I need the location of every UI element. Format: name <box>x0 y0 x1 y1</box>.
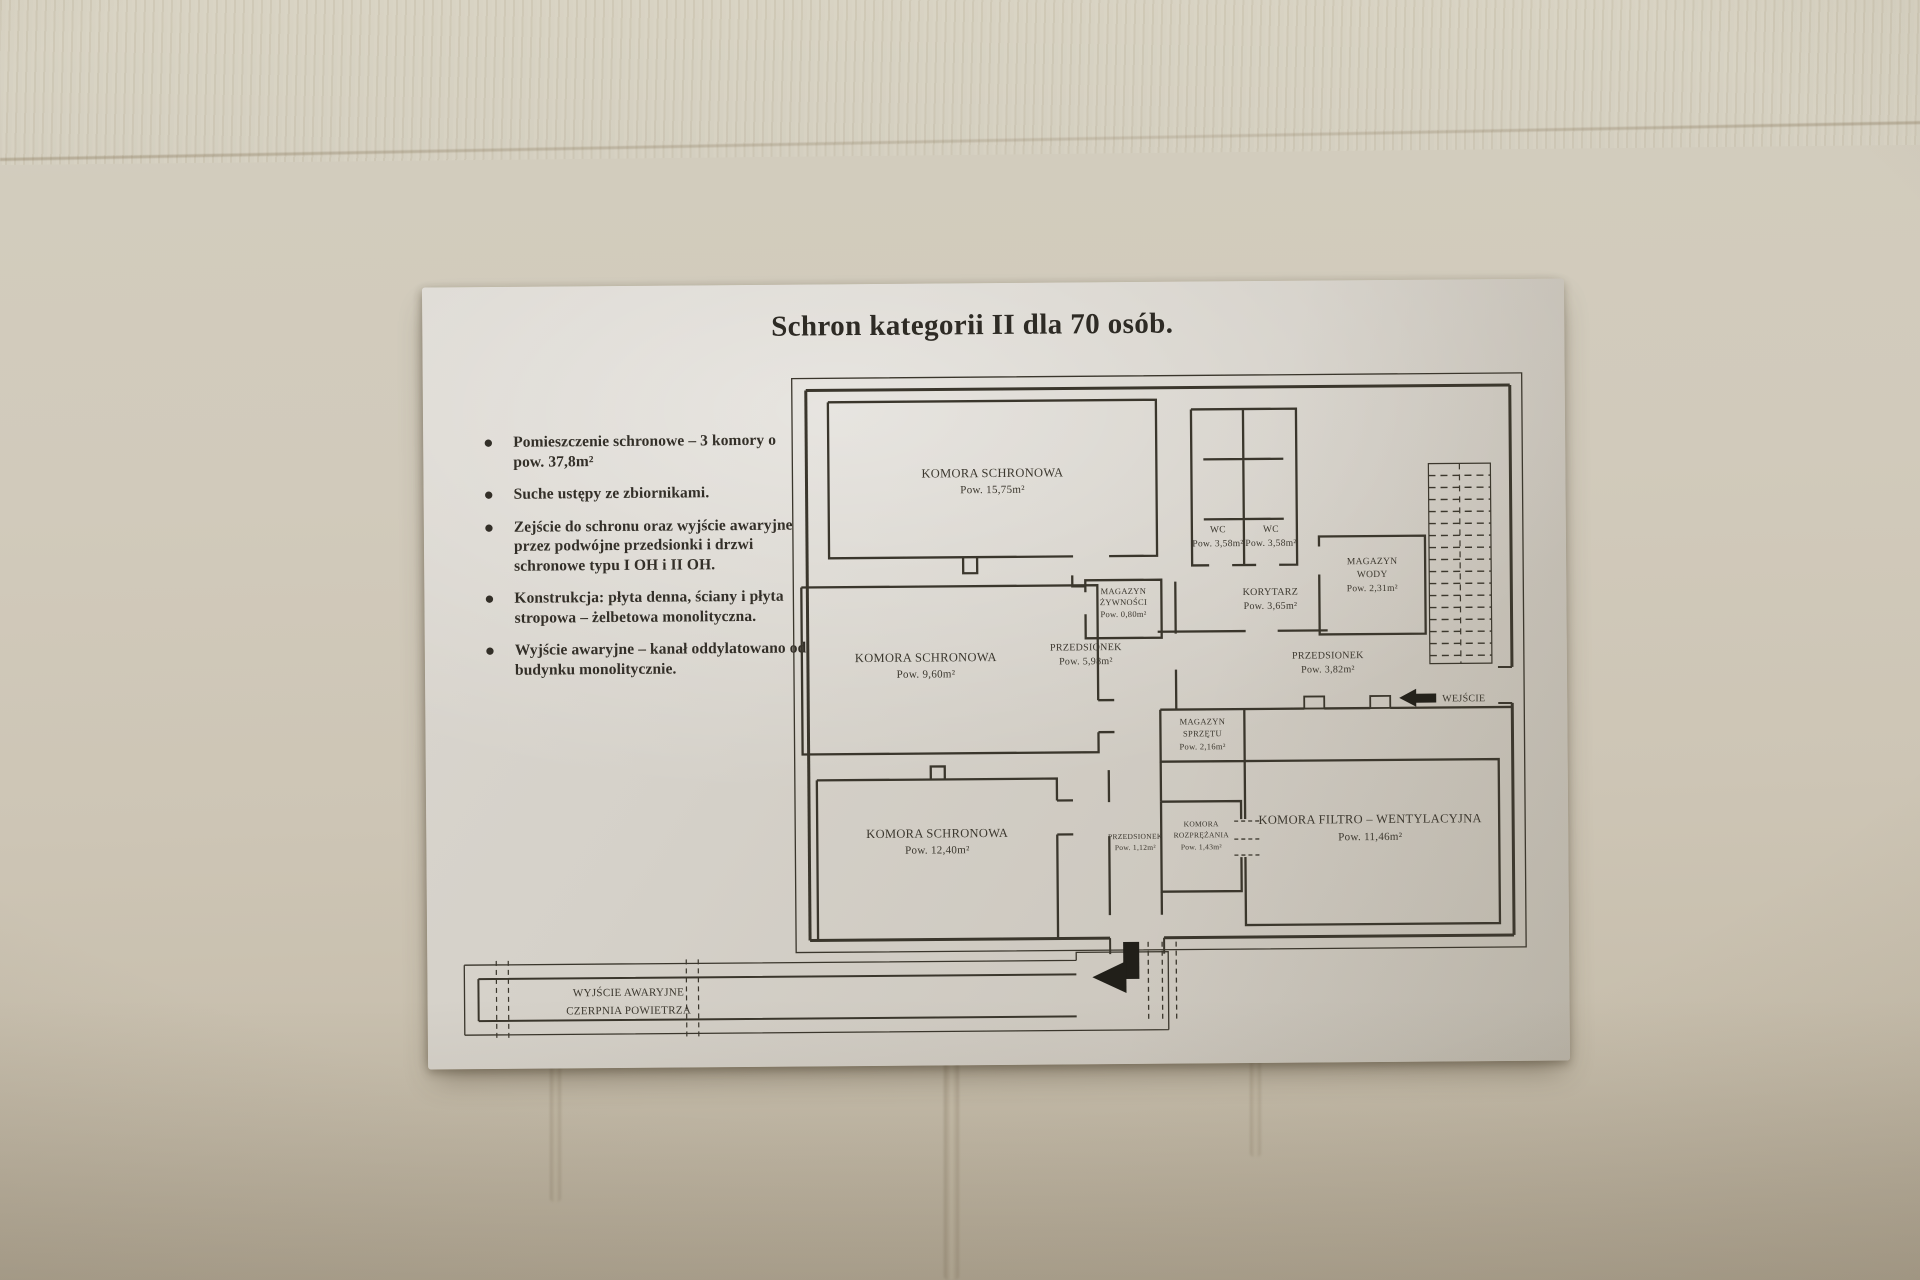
room-wall-wc-block <box>1191 409 1297 566</box>
wall-outline <box>806 385 1510 391</box>
room-name: KOMORA SCHRONOWA <box>921 465 1063 480</box>
bullet-item: ●Pomieszczenie schronowe – 3 komory o po… <box>479 430 809 472</box>
room-wall-przedsionek-112 <box>1109 762 1162 915</box>
room-area: Pow. 15,75m² <box>960 484 1025 497</box>
room-label: WC Pow. 3,58m² <box>1245 525 1296 549</box>
room-label: PRZEDSIONEK Pow. 3,82m² <box>1292 650 1364 676</box>
room-label: KOMORA SCHRONOWA Pow. 9,60m² <box>855 650 997 681</box>
corridor-wall <box>1175 582 1176 710</box>
interior-walls <box>800 397 1514 941</box>
entrance-marker: WEJŚCIE <box>1399 688 1485 707</box>
room-wall-magazyn-zywnosci <box>1085 580 1161 639</box>
duct-outer-line <box>464 952 1169 1036</box>
wall-outline <box>806 390 810 940</box>
duct-label: WYJŚCIE AWARYJNE CZERPNIA POWIETRZA <box>566 986 691 1017</box>
room-name: MAGAZYN <box>1101 586 1147 596</box>
staircase-outline <box>1428 463 1492 663</box>
bullet-text: Suche ustępy ze zbiornikami. <box>513 482 809 504</box>
room-name: ŻYWNOŚCI <box>1100 597 1147 607</box>
emergency-exit-arrow <box>1092 942 1139 993</box>
staircase <box>1428 463 1492 663</box>
room-wall-komora-rozprezania <box>1161 801 1242 892</box>
room-labels: KOMORA SCHRONOWA Pow. 15,75m² KOMORA SCH… <box>562 462 1483 1017</box>
bullet-marker: ● <box>480 589 514 628</box>
room-label: MAGAZYN WODY Pow. 2,31m² <box>1346 557 1397 594</box>
room-name: PRZEDSIONEK <box>1108 832 1163 841</box>
bullet-item: ●Konstrukcja: płyta denna, ściany i płyt… <box>480 587 810 629</box>
floor-plan-drawing: WEJŚCIE KOMORA SCHRONOWA Pow. 15,75m² KO… <box>456 367 1551 1066</box>
bullet-text: Zejście do schronu oraz wyjście awaryjne… <box>514 515 810 576</box>
bullet-marker: ● <box>480 485 514 505</box>
room-area: Pow. 12,40m² <box>905 844 970 857</box>
bullet-item: ●Suche ustępy ze zbiornikami. <box>480 482 810 504</box>
room-wall-komora-1240 <box>817 779 1058 941</box>
room-label: MAGAZYN ŻYWNOŚCI Pow. 0,80m² <box>1100 586 1148 619</box>
room-name: MAGAZYN <box>1347 557 1398 567</box>
room-name: KOMORA SCHRONOWA <box>866 826 1008 841</box>
wall-drip-mark <box>550 1052 561 1202</box>
room-name: PRZEDSIONEK <box>1292 650 1364 662</box>
door-jamb-stubs <box>1098 700 1114 732</box>
staircase-rail <box>1459 463 1461 663</box>
bullet-marker: ● <box>481 641 515 680</box>
room-label: PRZEDSIONEK Pow. 5,98m² <box>1050 642 1122 668</box>
room-name: SPRZĘTU <box>1183 728 1222 738</box>
room-name: PRZEDSIONEK <box>1050 642 1122 654</box>
emergency-exit-duct <box>464 952 1169 1040</box>
exit-arrow-shaft <box>1123 942 1139 979</box>
room-area: Pow. 0,80m² <box>1100 609 1146 619</box>
bullet-item: ●Wyjście awaryjne – kanał oddylatowano o… <box>481 639 811 681</box>
wall-outline <box>810 935 1514 941</box>
room-wall-magazyn-sprzetu <box>1160 709 1244 762</box>
bullet-marker: ● <box>480 517 514 576</box>
room-label: KOMORA ROZPRĘŻANIA Pow. 1,43m² <box>1173 819 1229 851</box>
wall-pilaster <box>1370 696 1390 708</box>
room-name: MAGAZYN <box>1180 716 1226 726</box>
door-jamb-stubs <box>1108 667 1514 954</box>
room-name: WC <box>1210 525 1226 535</box>
room-name: WODY <box>1357 570 1388 580</box>
wall-pilaster <box>1304 696 1324 708</box>
room-name: KORYTARZ <box>1243 587 1299 598</box>
bullet-text: Konstrukcja: płyta denna, ściany i płyta… <box>514 587 810 628</box>
room-area: Pow. 3,58m² <box>1245 539 1296 549</box>
entrance-label: WEJŚCIE <box>1442 692 1485 704</box>
poster-title: Schron kategorii II dla 70 osób. <box>422 305 1522 347</box>
dashed-details <box>1147 821 1263 1020</box>
room-area: Pow. 5,98m² <box>1059 656 1113 667</box>
room-name: KOMORA FILTRO – WENTYLACYJNA <box>1258 811 1481 827</box>
bullet-item: ●Zejście do schronu oraz wyjście awaryjn… <box>480 515 810 576</box>
bullet-text: Wyjście awaryjne – kanał oddylatowano od… <box>515 639 811 680</box>
room-area: Pow. 2,31m² <box>1347 584 1398 594</box>
corridor-wall <box>1158 630 1328 631</box>
wall-outline <box>1510 385 1514 935</box>
room-wall-komora-filtro <box>1245 759 1500 925</box>
emergency-exit-label: CZERPNIA POWIETRZA <box>566 1004 691 1017</box>
room-area: Pow. 1,12m² <box>1115 843 1157 852</box>
room-label: PRZEDSIONEK Pow. 1,12m² <box>1108 832 1163 852</box>
bullet-text: Pomieszczenie schronowe – 3 komory o pow… <box>513 430 809 471</box>
room-wall-magazyn-wody <box>1319 536 1426 635</box>
room-label: KOMORA SCHRONOWA Pow. 12,40m² <box>866 826 1008 857</box>
wall-stub <box>963 557 977 573</box>
duct-joint-dashes <box>496 959 699 1039</box>
room-label: KOMORA SCHRONOWA Pow. 15,75m² <box>921 465 1063 496</box>
corridor-wall <box>1160 707 1512 710</box>
room-area: Pow. 1,43m² <box>1181 842 1223 851</box>
room-area: Pow. 3,58m² <box>1192 539 1243 549</box>
room-name: KOMORA SCHRONOWA <box>855 650 997 665</box>
wall-drip-mark <box>1250 1052 1261 1157</box>
room-name: WC <box>1263 525 1279 535</box>
door-swing-dashes <box>1234 821 1261 855</box>
room-wall-komora-1575 <box>828 400 1157 559</box>
wc-stall-dividers <box>1203 409 1284 566</box>
room-label: MAGAZYN SPRZĘTU Pow. 2,16m² <box>1179 716 1226 751</box>
entrance-arrow-icon <box>1399 689 1436 707</box>
door-jamb-stubs <box>931 765 1074 835</box>
exit-arrow-head-icon <box>1092 961 1126 993</box>
shelter-plan-poster: Schron kategorii II dla 70 osób. ●Pomies… <box>422 279 1570 1070</box>
room-area: Pow. 2,16m² <box>1179 741 1225 751</box>
wall-photo-background: Schron kategorii II dla 70 osób. ●Pomies… <box>0 0 1920 1280</box>
duct-inner-wall <box>478 974 1076 1021</box>
bullet-list: ●Pomieszczenie schronowe – 3 komory o po… <box>479 430 811 693</box>
room-name: ROZPRĘŻANIA <box>1174 830 1230 839</box>
staircase-steps <box>1428 475 1491 655</box>
room-area: Pow. 3,82m² <box>1301 664 1355 675</box>
main-outer-walls <box>806 385 1514 957</box>
room-label: KORYTARZ Pow. 3,65m² <box>1243 587 1299 612</box>
room-wall-komora-960 <box>801 585 1098 754</box>
room-area: Pow. 11,46m² <box>1338 831 1403 844</box>
exit-shaft-dashes <box>1148 942 1177 1020</box>
room-label: WC Pow. 3,58m² <box>1192 525 1243 549</box>
emergency-exit-label: WYJŚCIE AWARYJNE <box>573 986 684 999</box>
bullet-marker: ● <box>479 433 513 472</box>
wall-drip-mark <box>944 1058 959 1280</box>
room-area: Pow. 9,60m² <box>897 668 956 680</box>
room-label: KOMORA FILTRO – WENTYLACYJNA Pow. 11,46m… <box>1258 811 1482 844</box>
room-name: KOMORA <box>1184 819 1219 828</box>
room-area: Pow. 3,65m² <box>1244 601 1298 612</box>
foundation-outline <box>792 373 1526 953</box>
wall-stub <box>1072 575 1085 586</box>
